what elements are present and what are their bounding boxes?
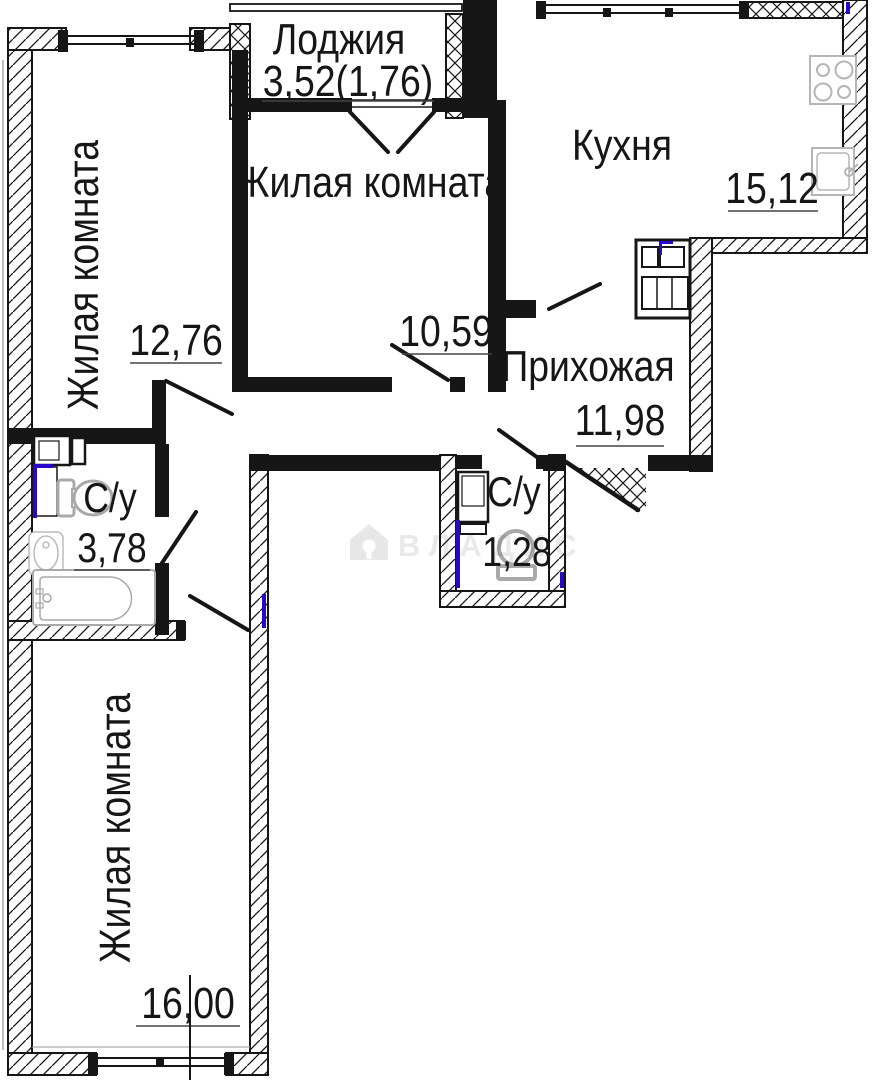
bathtub-icon	[33, 570, 155, 625]
room-name: С/у	[487, 469, 541, 515]
room-area: 10,59	[399, 306, 493, 356]
wall-wc-north-a	[456, 455, 482, 469]
wall-right-kitchen	[843, 0, 867, 253]
wall-bathroom-east-b	[155, 563, 169, 635]
wall-entry-stub-left	[543, 455, 565, 471]
wall-bottom-a	[8, 1053, 96, 1075]
wall-corridor-post	[152, 380, 166, 444]
wall-bathroom-east-a	[155, 444, 169, 517]
wall-wc-south	[440, 591, 565, 607]
wall-bottom-room-door-jamb	[176, 621, 186, 640]
riser-mark-kitchen	[846, 2, 850, 14]
wall-loggia-floor-b	[432, 98, 464, 112]
floor-plan: ВЛАДИС Лоджия 3,52(1,76) Жилая комната 1…	[0, 0, 872, 1080]
washbasin-icon	[29, 532, 63, 575]
riser-mark-wc-right	[560, 572, 564, 588]
wall-entry-stub-right	[648, 455, 712, 471]
riser-mark-bathroom-v	[33, 464, 37, 518]
room-living-middle-label: Жилая комната	[235, 157, 505, 207]
room-name: Жилая комната	[235, 157, 505, 207]
vent-shaft-icon	[636, 240, 690, 318]
room-name: Прихожая	[501, 341, 674, 391]
room-name: Жилая комната	[90, 693, 140, 963]
wall-kitchen-door-stub	[488, 300, 536, 318]
room-living-bottom-label: Жилая комната	[90, 693, 140, 963]
room-area: 3,78	[77, 525, 146, 571]
wall-living-middle-south-b	[450, 377, 465, 392]
room-area: 12,76	[129, 315, 223, 365]
room-bathroom-label: С/у	[83, 475, 137, 521]
cabinet	[34, 467, 57, 516]
kitchen-sink-icon	[812, 148, 858, 195]
room-living-middle-area: 10,59	[399, 306, 493, 356]
room-hallway-label: Прихожая	[501, 341, 674, 391]
room-wc-area: 1,28	[482, 529, 551, 575]
wall-living-left-east	[232, 50, 248, 377]
wall-living-middle-south-a	[232, 377, 392, 392]
wall-top-left-a	[8, 28, 66, 50]
wall-corridor-south	[250, 455, 440, 471]
room-living-bottom-area: 16,00	[141, 978, 235, 1028]
room-wc-label: С/у	[487, 469, 541, 515]
room-area: 11,98	[575, 395, 666, 445]
room-loggia-area: 3,52(1,76)	[263, 56, 433, 106]
washing-machine-icon	[34, 436, 85, 465]
room-area: 1,28	[482, 529, 551, 575]
room-kitchen-area: 15,12	[725, 163, 819, 213]
stove-icon	[810, 56, 856, 104]
room-name: Кухня	[572, 120, 672, 170]
room-name: С/у	[83, 475, 137, 521]
room-area: 16,00	[141, 978, 235, 1028]
room-hallway-area: 11,98	[575, 395, 666, 445]
room-area: 15,12	[725, 163, 819, 213]
water-heater	[458, 472, 488, 534]
room-kitchen-label: Кухня	[572, 120, 672, 170]
floor-plan-drawing: ВЛАДИС Лоджия 3,52(1,76) Жилая комната 1…	[0, 0, 872, 1080]
wall-bottom-room-east	[250, 455, 268, 1075]
room-name: Жилая комната	[58, 140, 108, 410]
riser-mark-shaft-h	[659, 241, 673, 244]
riser-mark-corridor	[262, 594, 266, 628]
room-living-left-label: Жилая комната	[58, 140, 108, 410]
room-living-left-area: 12,76	[129, 315, 223, 365]
wall-hallway-east	[690, 238, 712, 471]
room-area: 3,52(1,76)	[263, 56, 433, 106]
room-bathroom-area: 3,78	[77, 525, 146, 571]
wall-kitchen-bottom-right	[690, 238, 867, 253]
